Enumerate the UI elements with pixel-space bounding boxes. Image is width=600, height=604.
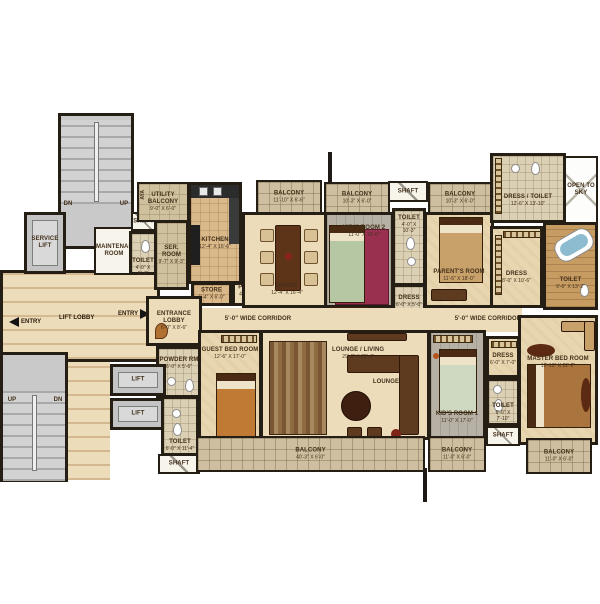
lift-lobby-label-wrap: LIFT LOBBY [59, 315, 94, 321]
balcony-dining-label: BALCONY11'-10" X 6'-6" [258, 191, 320, 204]
kitchen-tall-unit [229, 198, 239, 244]
toilet-fixture [531, 162, 540, 175]
maintenance-room-label: MAINTENANCE ROOM [96, 244, 132, 258]
utility-balcony: AYA UTILITY BALCONY9'-0" X 6'-0" [137, 182, 189, 222]
basin-fixture [511, 164, 520, 173]
dress-toilet-label: DRESS / TOILET12'-6" X 13'-10" [493, 194, 563, 207]
toilet-lobby: TOILET6'-0" X 11'-4" [161, 396, 199, 456]
bed [216, 373, 256, 437]
wardrobe [221, 335, 257, 343]
shaft-bottom-left-label: SHAFT [160, 461, 198, 468]
balcony-parents: BALCONY10'-3" X 6'-0" [428, 182, 492, 214]
bed [439, 349, 477, 413]
sofa [347, 355, 405, 373]
sofa [399, 355, 419, 435]
basin-fixture [407, 257, 416, 266]
toilet-fixture [173, 423, 182, 436]
shaft-top-middle: SHAFT [388, 181, 428, 202]
stool [433, 353, 439, 359]
balcony-bottom-label: BALCONY40'-3" X 6'-0" [266, 448, 356, 461]
shaft-bottom-right-label: SHAFT [488, 433, 518, 440]
entrance-lobby: ENTRANCE LOBBY6'-0" X 8'-6" [146, 296, 202, 346]
balcony-kids2-label: BALCONY10'-3" X 6'-0" [326, 192, 388, 205]
toilet-service: TOILET4'-0" X 5'-4" [129, 231, 157, 275]
dining-chair [304, 273, 318, 286]
lift-lobby-label: LIFT LOBBY [59, 315, 94, 321]
kitchen: KITCHEN12'-4" X 16'-6" [188, 182, 242, 284]
bathtub [551, 225, 598, 266]
maintenance-room: MAINTENANCE ROOM [94, 227, 134, 275]
dining-chair [260, 229, 274, 242]
shaft-top-middle-label: SHAFT [390, 188, 426, 195]
toilet-service-label: TOILET4'-0" X 5'-4" [132, 258, 154, 277]
dress-master: DRESS8'-0" X 10'-6" [490, 226, 543, 308]
bed [439, 217, 483, 283]
console-table [347, 333, 407, 341]
coffee-table [341, 391, 371, 421]
balcony-kids1-label: BALCONY11'-0" X 6'-0" [430, 448, 484, 461]
utility-balcony-label: UTILITY BALCONY9'-0" X 6'-0" [139, 192, 187, 212]
dress-kids1: DRESS6'-0" X 7'-0" [486, 336, 520, 378]
wall-stub-bottom [423, 468, 427, 502]
toilet-kids2-label: TOILET4'-0" X 10'-3" [395, 215, 423, 234]
toilet-kids1: TOILET6'-0" X 7'-10" [486, 378, 520, 426]
bench [431, 289, 467, 301]
service-lift: SERVICE LIFT [24, 212, 66, 274]
service-lift-car [32, 220, 58, 266]
wardrobe [433, 335, 473, 343]
servant-room: SER. ROOM9'-7" X 9'-3" [154, 220, 189, 290]
stair-rail [94, 122, 99, 202]
wardrobe [491, 341, 517, 348]
balcony-bottom: BALCONY40'-3" X 6'-0" [196, 436, 425, 472]
lift-1: LIFT [110, 364, 166, 396]
aya-label: AYA [140, 190, 146, 200]
floor-plan: ENTRY LIFT LOBBY ENTRY DN UP SERVICE LIF… [0, 0, 600, 604]
oval-rug [581, 378, 591, 412]
toilet-fixture [185, 379, 194, 392]
shaft-bottom-right: SHAFT [486, 426, 520, 446]
toilet-master: TOILET9'-6" X 13'-2" [543, 222, 598, 310]
dress-toilet: DRESS / TOILET12'-6" X 13'-10" [490, 153, 566, 223]
entry-arrow-left-icon [9, 317, 19, 327]
living-rug [269, 341, 327, 435]
toilet-lobby-label: TOILET6'-0" X 11'-4" [164, 439, 196, 452]
lift-lobby: ENTRY LIFT LOBBY ENTRY [0, 270, 160, 362]
dining-chair [304, 251, 318, 264]
open-to-sky-label: OPEN TO SKY [566, 183, 596, 197]
kitchen-fridge [191, 225, 200, 265]
entry-left: ENTRY [9, 317, 41, 327]
wardrobe [495, 158, 502, 214]
basin-fixture [172, 409, 181, 418]
lift-2: LIFT [110, 398, 166, 430]
kids-room-2: KID'S ROOM 211'-0" X 15'-0" [324, 212, 394, 308]
lobby-extension [66, 362, 110, 480]
balcony-parents-label: BALCONY10'-3" X 6'-0" [430, 192, 490, 205]
balcony-master-label: BALCONY11'-0" X 6'-0" [528, 450, 590, 463]
basin-fixture [167, 377, 176, 386]
toilet-fixture [580, 284, 589, 297]
lift-2-car [118, 406, 158, 422]
shaft-bottom-left: SHAFT [158, 454, 200, 474]
oval-rug [527, 344, 555, 357]
entry-left-label: ENTRY [21, 319, 41, 325]
balcony-kids2: BALCONY10'-3" X 6'-0" [324, 182, 390, 214]
sofa [584, 321, 595, 351]
servant-room-label: SER. ROOM9'-7" X 9'-3" [157, 245, 186, 265]
guest-bed-room: GUEST BED ROOM12'-6" X 17'-0" [198, 330, 262, 440]
kids-room-1: KID'S ROOM 111'-0" X 17'-0" [428, 330, 486, 440]
toilet-fixture [141, 240, 150, 253]
corridor-left-label: 5'-0" WIDE CORRIDOR [198, 316, 318, 323]
dining-chair [304, 229, 318, 242]
table-centerpiece [285, 253, 292, 260]
dining-chair [260, 251, 274, 264]
dining: DINING12'-4" X 16'-4" [242, 212, 332, 308]
wall-stub-top [328, 152, 332, 184]
lift-1-car [118, 372, 158, 388]
open-to-sky: OPEN TO SKY [564, 156, 598, 224]
corridor: 5'-0" WIDE CORRIDOR 5'-0" WIDE CORRIDOR [188, 308, 522, 332]
dining-chair [260, 273, 274, 286]
bed [329, 225, 365, 303]
wardrobe [495, 235, 502, 295]
staircase-bottom: UP DN [0, 352, 68, 482]
lounge-living: LOUNGE / LIVING29'-6" X 22'-4" LOUNGE [260, 330, 430, 440]
kitchen-sink [199, 187, 208, 196]
parents-room: PARENT'S ROOM11'-6" X 18'-0" [424, 212, 494, 308]
balcony-kids1: BALCONY11'-0" X 6'-0" [428, 436, 486, 472]
dress-kids1-label: DRESS6'-0" X 7'-0" [489, 353, 517, 366]
bathtub-water [558, 231, 591, 258]
wardrobe [503, 231, 541, 238]
basin-fixture [493, 385, 502, 394]
master-bed-room: MASTER BED ROOM12'-10" X 22'-2" [518, 315, 598, 445]
dress-kids2-label: DRESS6'-0" X 5'-0" [395, 295, 423, 308]
balcony-master: BALCONY11'-0" X 6'-0" [526, 438, 592, 474]
stair-rail [32, 395, 37, 471]
toilet-kids2: TOILET4'-0" X 10'-3" [392, 208, 426, 286]
guest-bed-room-label: GUEST BED ROOM12'-6" X 17'-0" [201, 347, 259, 360]
kitchen-hob [213, 187, 222, 196]
planter [155, 323, 168, 339]
toilet-fixture [406, 237, 415, 250]
toilet-fixture [494, 399, 503, 412]
entry-right-label: ENTRY [118, 311, 138, 317]
balcony-dining: BALCONY11'-10" X 6'-6" [256, 180, 322, 214]
